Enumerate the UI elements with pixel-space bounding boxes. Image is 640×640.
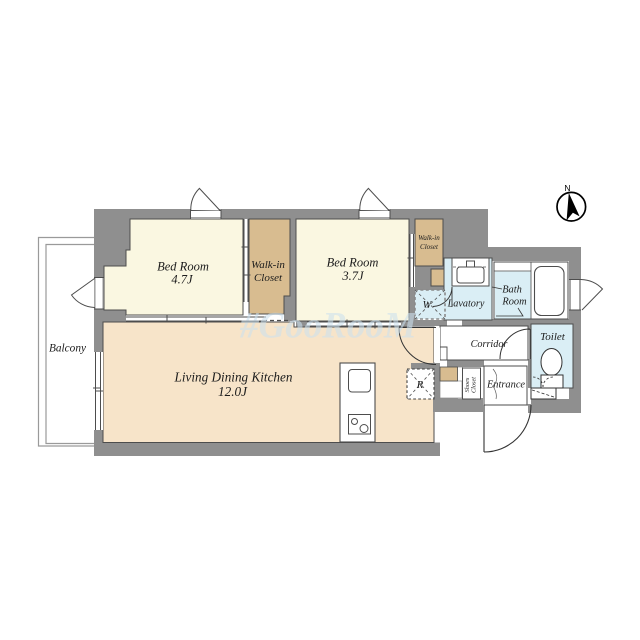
svg-text:Bed Room: Bed Room (327, 256, 379, 270)
svg-text:W: W (423, 300, 433, 311)
svg-text:12.0J: 12.0J (218, 384, 248, 399)
svg-text:Closet: Closet (471, 377, 478, 393)
svg-text:R: R (416, 380, 424, 391)
svg-text:4.7J: 4.7J (171, 273, 194, 287)
svg-text:Walk-in: Walk-in (251, 259, 285, 271)
svg-text:Closet: Closet (420, 243, 439, 251)
svg-text:Living Dining Kitchen: Living Dining Kitchen (174, 370, 293, 385)
svg-text:N: N (564, 183, 570, 193)
svg-text:Balcony: Balcony (49, 343, 87, 355)
svg-text:Bed Room: Bed Room (157, 260, 209, 274)
svg-text:Room: Room (501, 297, 527, 308)
svg-text:Closet: Closet (254, 272, 283, 284)
svg-text:#GooRooM: #GooRooM (239, 306, 418, 347)
svg-text:Walk-in: Walk-in (418, 234, 440, 242)
svg-text:3.7J: 3.7J (341, 269, 365, 283)
svg-text:Entrance: Entrance (486, 380, 525, 391)
svg-text:Bath: Bath (502, 285, 522, 296)
svg-text:Toilet: Toilet (540, 331, 566, 343)
